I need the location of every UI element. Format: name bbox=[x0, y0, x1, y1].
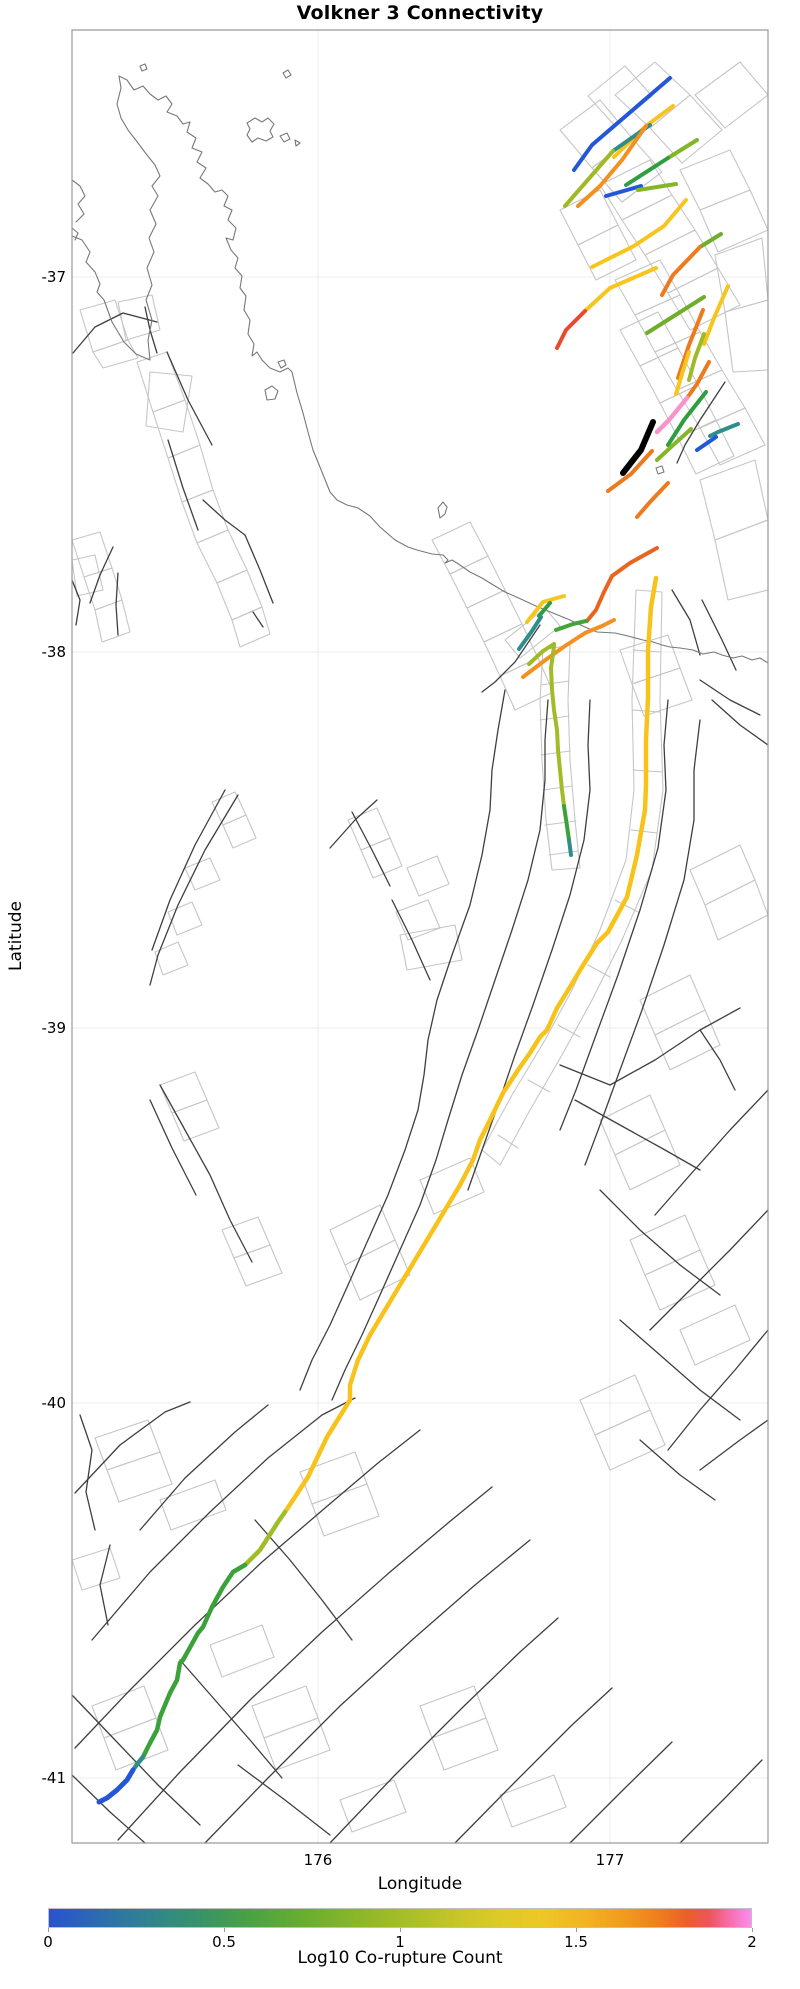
fault-trace bbox=[560, 700, 668, 1130]
fault-trace bbox=[203, 500, 245, 535]
fault-trace bbox=[668, 1330, 768, 1450]
fault-mesh bbox=[432, 522, 488, 574]
island bbox=[283, 70, 291, 78]
fault-trace bbox=[455, 1688, 612, 1843]
fault-mesh bbox=[500, 1775, 566, 1827]
rupture-orange-s1 bbox=[608, 451, 652, 491]
fault-trace bbox=[180, 1660, 282, 1778]
fault-mesh bbox=[212, 792, 246, 825]
fault-mesh bbox=[588, 66, 652, 126]
fault-mesh bbox=[93, 340, 138, 368]
fault-mesh bbox=[234, 1245, 282, 1286]
fault-trace bbox=[245, 535, 273, 603]
fault-mesh bbox=[407, 856, 449, 896]
fault-trace bbox=[150, 795, 238, 985]
fault-trace bbox=[702, 600, 736, 670]
island bbox=[247, 118, 274, 142]
fault-trace bbox=[700, 1420, 768, 1470]
fault-mesh bbox=[615, 1130, 680, 1190]
figure: Volkner 3 Connectivity Latitude Longitud… bbox=[0, 0, 800, 1989]
fault-trace bbox=[160, 1085, 252, 1262]
rupture-green-r bbox=[700, 234, 721, 247]
fault-trace bbox=[330, 1618, 558, 1843]
lat-tick--38: -38 bbox=[18, 642, 66, 662]
fault-trace bbox=[468, 700, 590, 1190]
fault-mesh bbox=[645, 1250, 715, 1310]
fault-mesh bbox=[420, 1158, 484, 1214]
page-title: Volkner 3 Connectivity bbox=[72, 2, 768, 24]
fault-trace bbox=[152, 790, 225, 950]
fault-mesh bbox=[432, 1718, 498, 1770]
rupture-orange-s2 bbox=[637, 483, 668, 517]
fault-mesh bbox=[210, 1625, 274, 1677]
fault-trace bbox=[205, 1540, 530, 1843]
fault-trace bbox=[238, 1765, 330, 1835]
lon-tick-177: 177 bbox=[586, 1850, 634, 1870]
fault-trace bbox=[72, 1695, 200, 1825]
fault-trace bbox=[570, 1742, 672, 1843]
fault-mesh bbox=[168, 445, 213, 502]
fault-mesh bbox=[185, 858, 220, 890]
fault-trace bbox=[253, 612, 263, 627]
fault-trace bbox=[620, 1320, 740, 1420]
coastline bbox=[72, 180, 85, 222]
fault-mesh bbox=[160, 1072, 207, 1113]
fault-mesh bbox=[482, 590, 663, 1165]
coastline bbox=[72, 76, 768, 663]
lon-tick-176: 176 bbox=[294, 1850, 342, 1870]
island bbox=[438, 502, 447, 518]
fault-mesh bbox=[95, 600, 130, 642]
lat-tick--37: -37 bbox=[18, 267, 66, 287]
rupture-ygreen-short bbox=[638, 184, 676, 190]
colorbar-tickmark-1.5 bbox=[576, 1928, 577, 1932]
fault-trace bbox=[73, 313, 157, 353]
fault-mesh bbox=[361, 838, 402, 878]
fault-trace bbox=[600, 1190, 720, 1295]
fault-mesh bbox=[680, 150, 750, 210]
fault-trace bbox=[575, 1100, 700, 1170]
y-axis-label: Latitude bbox=[6, 901, 26, 971]
colorbar bbox=[48, 1908, 752, 1928]
fault-mesh bbox=[107, 1452, 172, 1502]
rupture-yellow-steep bbox=[704, 286, 728, 344]
fault-mesh bbox=[197, 530, 247, 583]
lat-tick--39: -39 bbox=[18, 1018, 66, 1038]
fault-mesh bbox=[160, 1480, 226, 1530]
island bbox=[265, 386, 278, 400]
fault-trace bbox=[92, 1398, 355, 1640]
fault-mesh bbox=[155, 942, 188, 975]
colorbar-tickmark-2 bbox=[752, 1928, 753, 1932]
fault-mesh bbox=[700, 460, 768, 540]
rupture-ygreen bbox=[668, 140, 697, 158]
fault-trace bbox=[330, 800, 377, 848]
colorbar-tickmark-1 bbox=[400, 1928, 401, 1932]
lat-tick--41: -41 bbox=[18, 1768, 66, 1788]
rupture-olive-long-green bbox=[564, 806, 569, 840]
map-canvas bbox=[0, 0, 800, 1989]
fault-trace bbox=[100, 1545, 110, 1625]
rupture-olive-long bbox=[551, 646, 564, 806]
fault-trace bbox=[655, 1090, 768, 1215]
lat-tick--40: -40 bbox=[18, 1393, 66, 1413]
fault-trace bbox=[168, 440, 198, 530]
fault-mesh bbox=[695, 62, 768, 128]
fault-trace bbox=[672, 590, 700, 655]
fault-mesh bbox=[223, 815, 256, 848]
fault-mesh bbox=[232, 607, 270, 647]
fault-trace bbox=[72, 1775, 145, 1843]
rupture-deeporange-diag bbox=[587, 548, 657, 621]
fault-mesh bbox=[595, 1410, 665, 1470]
fault-mesh bbox=[615, 260, 680, 315]
fault-mesh bbox=[467, 590, 522, 642]
fault-trace bbox=[712, 700, 768, 745]
fault-mesh bbox=[80, 300, 128, 352]
fault-mesh bbox=[217, 570, 262, 620]
rupture-olive-long-teal bbox=[569, 840, 571, 855]
fault-trace bbox=[560, 1008, 740, 1085]
fault-trace bbox=[700, 680, 760, 715]
rupture-orange-coast bbox=[523, 620, 614, 677]
fault-trace bbox=[145, 307, 157, 353]
rupture-main-yellow bbox=[285, 578, 656, 1512]
colorbar-label: Log10 Co-rupture Count bbox=[48, 1948, 752, 1968]
rupture-main-ygreen bbox=[245, 1512, 285, 1565]
fault-mesh bbox=[578, 225, 636, 280]
island bbox=[656, 466, 664, 474]
fault-mesh bbox=[632, 668, 692, 716]
fault-trace bbox=[80, 1415, 95, 1530]
x-axis-label: Longitude bbox=[72, 1874, 768, 1894]
island bbox=[280, 133, 290, 142]
island bbox=[278, 360, 286, 368]
fault-mesh bbox=[680, 1305, 750, 1365]
fault-trace bbox=[680, 1760, 762, 1843]
rupture-red bbox=[557, 311, 585, 348]
fault-trace bbox=[140, 1405, 268, 1530]
fault-trace bbox=[75, 1402, 190, 1493]
fault-trace bbox=[392, 900, 430, 980]
colorbar-tickmark-0.5 bbox=[224, 1928, 225, 1932]
island bbox=[295, 140, 300, 146]
fault-trace bbox=[352, 812, 390, 886]
fault-mesh bbox=[72, 1548, 120, 1590]
fault-mesh bbox=[650, 95, 722, 163]
rupture-teal-s bbox=[710, 424, 738, 436]
fault-trace bbox=[332, 700, 548, 1400]
fault-mesh bbox=[340, 1780, 406, 1832]
fault-mesh bbox=[705, 880, 768, 940]
rupture-yellow-curve bbox=[592, 200, 686, 267]
fault-trace bbox=[118, 1487, 492, 1840]
fault-trace bbox=[640, 1440, 715, 1500]
rupture-orange-r bbox=[662, 247, 700, 295]
island bbox=[140, 64, 147, 71]
fault-mesh bbox=[715, 520, 768, 600]
rupture-main-blue bbox=[99, 1770, 133, 1802]
fault-mesh bbox=[655, 1010, 720, 1070]
colorbar-tickmark-0 bbox=[48, 1928, 49, 1932]
fault-mesh bbox=[725, 300, 768, 372]
